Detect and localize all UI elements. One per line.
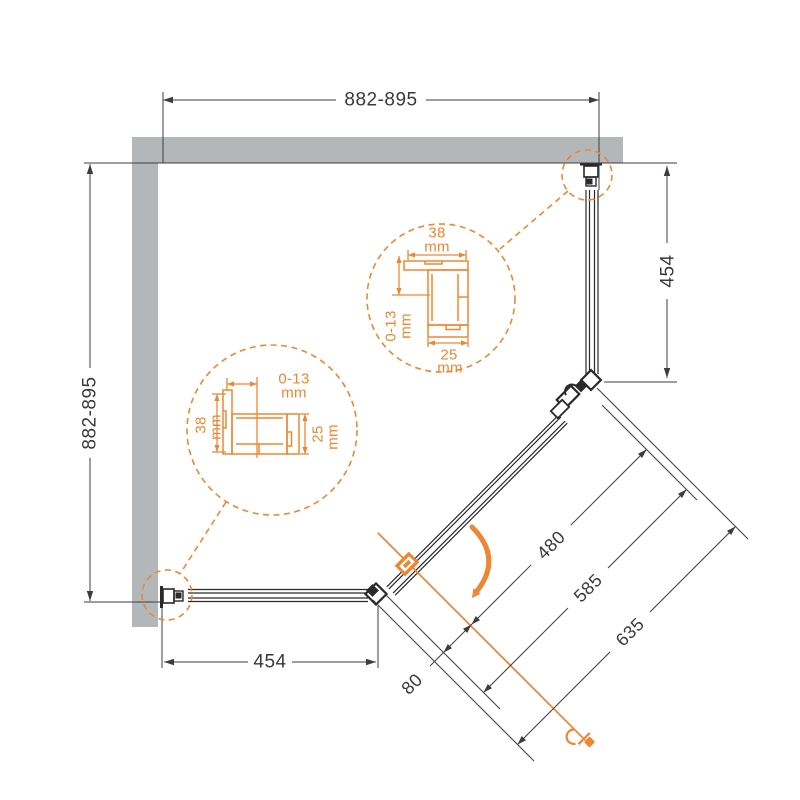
diagonal-extension-lines [373,388,748,761]
wall-left [132,137,158,627]
detail-leader-top [500,191,568,249]
dim-right-panel-label: 454 [658,254,679,287]
fixed-panel-right [586,190,598,374]
dim-left-depth-label: 882-895 [80,376,101,449]
dim-corner-offset: 80 [397,450,646,699]
detail-bottom-depth-unit: mm [325,424,342,450]
wall-profile-left-body [163,589,174,603]
extension-hinge [602,405,697,500]
detail-top-adjust-unit: mm [398,313,415,339]
door-hinge [551,385,580,419]
door-handle [567,729,596,747]
corner-connector-bottom-body [365,583,386,604]
corner-connector-top [575,370,601,392]
detail-bubble-bottom: 0-13 mm 38 mm 25 mm [142,345,357,620]
wall-left-band [132,137,158,627]
wall-profile-left-block [176,593,182,599]
wall-top [132,137,623,163]
wall-profile-top-block [587,179,593,185]
door-pivot-bracket [395,552,420,577]
corner-connector-bottom [365,583,386,604]
door-swing-arc [472,527,489,591]
panel-bottom-glass-lines [188,590,368,602]
extension-corner-top [597,388,748,539]
dim-door-glass-label: 480 [533,527,569,563]
door-handle-hook [567,729,576,743]
detail-leader-bottom [180,502,226,574]
detail-top-depth-unit: mm [437,360,463,377]
dim-entry-width-label: 635 [612,614,648,650]
detail-bottom-width-unit: mm [208,414,225,440]
detail-bubble-top: 38 mm 0-13 mm 25 mm [367,150,612,377]
door-swing-arrow [472,527,489,598]
drawing-canvas: 882-895 882-895 454 454 80 480 [0,0,800,800]
extension-corner-outer [373,600,534,761]
wall-top-band [132,137,623,163]
dim-bottom-panel: 454 [162,606,378,673]
detail-top-width-unit: mm [424,239,450,256]
fixed-panel-bottom [188,590,368,602]
enclosure-plan-svg: 882-895 882-895 454 454 80 480 [0,0,800,800]
dim-door-width: 585 [484,490,687,693]
wall-profile-top-body [584,166,598,177]
dim-bottom-panel-label: 454 [253,652,286,673]
detail-bottom-adjust-unit: mm [281,385,307,402]
wall-profile-left [162,586,184,608]
extension-corner [385,594,500,709]
dim-corner-offset-label: 80 [397,669,426,698]
dim-door-width-label: 585 [570,570,606,606]
panel-right-glass-lines [586,190,598,374]
dim-top-width-label: 882-895 [344,90,417,111]
dim-right-panel: 454 [604,166,679,382]
